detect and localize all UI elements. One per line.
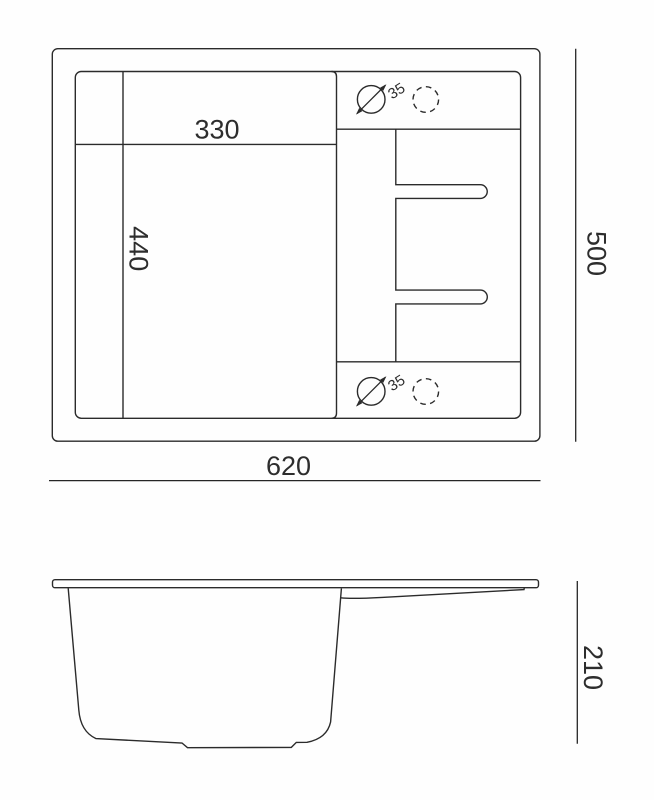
svg-text:620: 620 [266,451,311,481]
svg-text:35: 35 [385,372,408,395]
svg-text:210: 210 [578,645,608,690]
svg-text:500: 500 [581,231,611,276]
svg-text:440: 440 [124,226,154,271]
svg-text:330: 330 [194,114,239,144]
svg-text:35: 35 [385,80,408,103]
